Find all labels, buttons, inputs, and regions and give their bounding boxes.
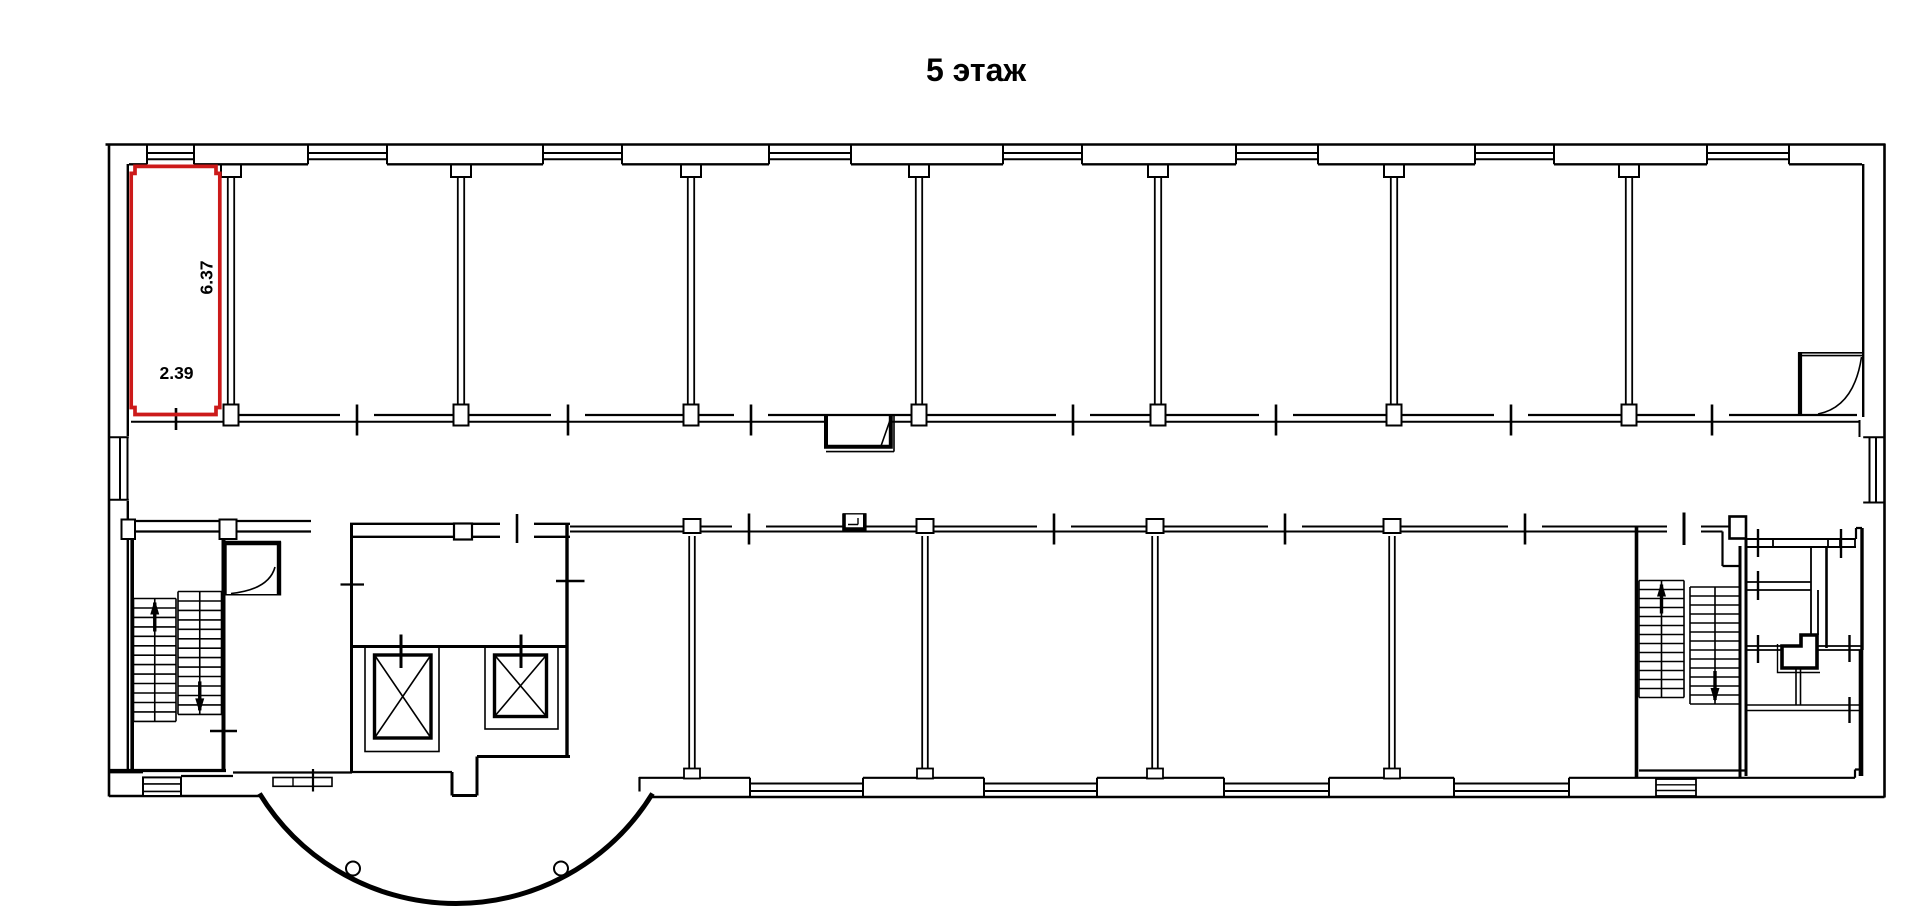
svg-text:5 этаж: 5 этаж xyxy=(926,52,1026,88)
svg-text:6.37: 6.37 xyxy=(197,260,217,294)
svg-text:2.39: 2.39 xyxy=(159,363,193,383)
